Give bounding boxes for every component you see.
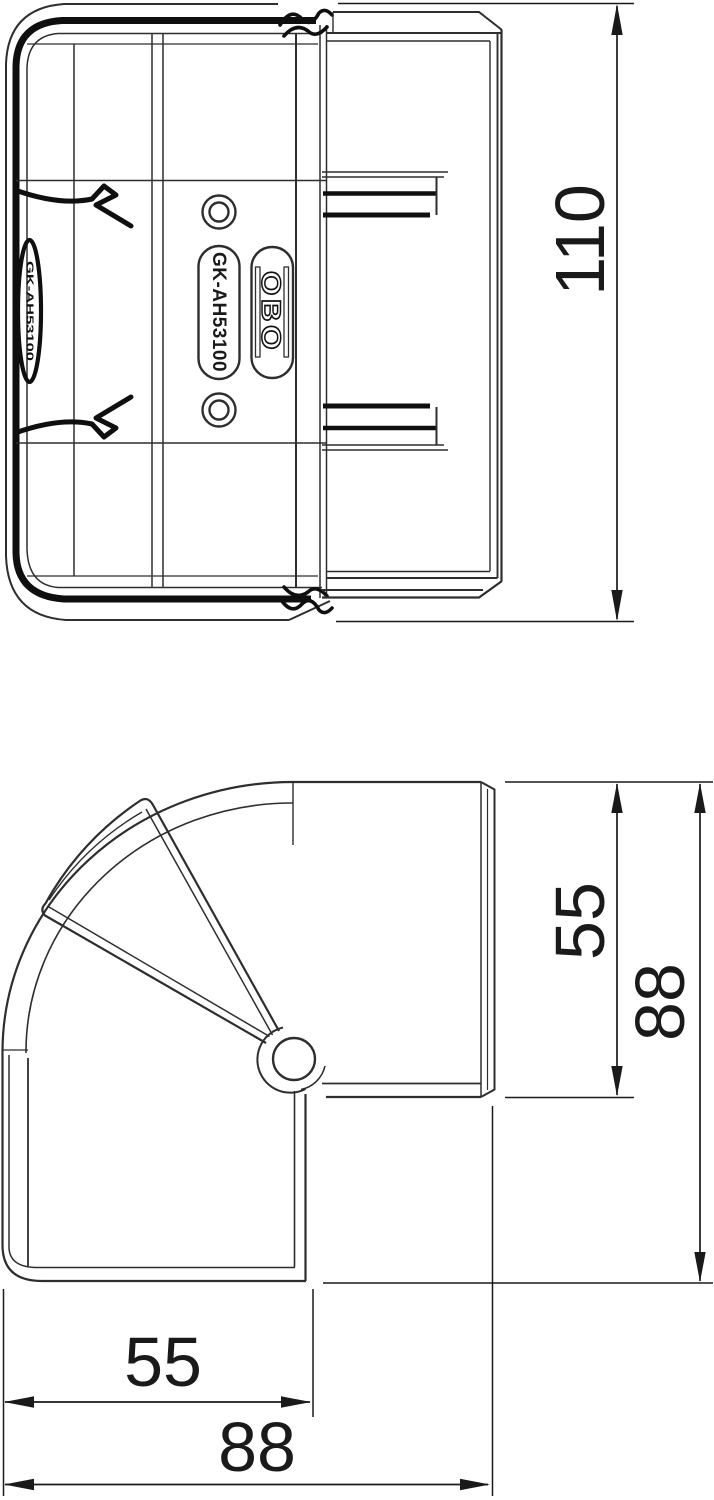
arrowhead (4, 1396, 34, 1407)
dimensions: 110 55 88 55 88 (4, 4, 714, 1497)
model-text: GK-AH53100 (208, 252, 229, 372)
technical-drawing-page: GK-AH53100 GK-AH53100 OBO (0, 0, 714, 1500)
dimension-text-height: 110 (541, 184, 619, 296)
arrowhead (694, 783, 705, 813)
arrowhead (611, 590, 622, 621)
dimension-width-inner: 55 (4, 1323, 311, 1408)
dimension-text-width-overall: 88 (218, 1408, 296, 1486)
duct-right (293, 782, 495, 1097)
dimension-text-width-inner: 55 (124, 1323, 202, 1401)
brand-text: OBO (256, 271, 286, 353)
spring-clip-bottom (15, 397, 131, 437)
arrowhead (281, 1396, 311, 1407)
pivot-circle (273, 1038, 315, 1080)
screw-hole-bottom-inner (210, 401, 229, 420)
duct-down (3, 1050, 307, 1281)
dimension-depth-inner: 55 (541, 783, 623, 1096)
dimension-text-depth-overall: 88 (621, 963, 699, 1041)
socket (322, 12, 502, 598)
arrowhead (460, 1479, 490, 1490)
dimension-width-overall: 88 (4, 1408, 490, 1490)
side-stamp-text: GK-AH53100 (24, 261, 35, 362)
dimension-depth-overall: 88 (621, 783, 706, 1282)
dimension-text-depth-inner: 55 (541, 882, 619, 960)
screw-hole-top (203, 196, 236, 229)
socket-tab-top (322, 172, 448, 215)
socket-tab-bottom (322, 406, 448, 450)
front-view (3, 782, 495, 1281)
adjustable-vane (42, 799, 279, 1043)
spring-clip-top (15, 186, 131, 226)
arrowhead (611, 1066, 622, 1096)
arrowhead (611, 4, 622, 35)
arrowhead (611, 783, 622, 813)
drawing-canvas: GK-AH53100 GK-AH53100 OBO (0, 0, 714, 1500)
dimension-height: 110 (541, 4, 623, 621)
screw-hole-top-inner (210, 203, 229, 222)
top-view: GK-AH53100 GK-AH53100 OBO (6, 4, 502, 620)
body-outline (6, 4, 289, 620)
arrowhead (4, 1479, 34, 1490)
screw-hole-bottom (203, 394, 236, 427)
lid-step (289, 601, 330, 620)
arrowhead (694, 1252, 705, 1282)
